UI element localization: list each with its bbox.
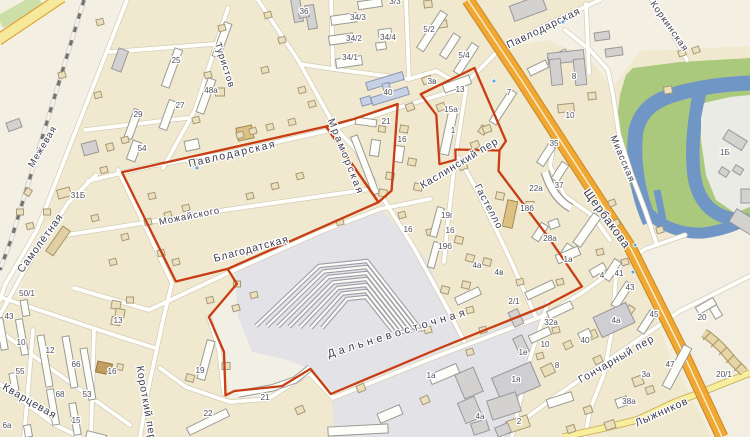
svg-text:19: 19 [195, 366, 205, 375]
svg-text:20: 20 [697, 313, 707, 322]
svg-text:18б: 18б [520, 204, 534, 213]
svg-text:15: 15 [71, 416, 81, 425]
svg-text:47: 47 [665, 360, 675, 369]
svg-text:16: 16 [107, 367, 117, 376]
svg-text:22а: 22а [529, 184, 543, 193]
svg-text:50/1: 50/1 [19, 289, 35, 298]
svg-text:28а: 28а [543, 234, 557, 243]
svg-text:3а: 3а [641, 370, 651, 379]
svg-text:12: 12 [45, 346, 55, 355]
svg-text:13: 13 [113, 316, 123, 325]
svg-text:4а: 4а [475, 412, 485, 421]
svg-text:1я: 1я [512, 375, 521, 384]
svg-text:68: 68 [55, 390, 65, 399]
svg-text:8: 8 [572, 72, 577, 81]
svg-text:4а: 4а [611, 316, 621, 325]
svg-text:19б: 19б [438, 242, 452, 251]
svg-text:19г: 19г [441, 211, 453, 220]
svg-text:36: 36 [299, 7, 309, 16]
svg-text:38а: 38а [622, 397, 636, 406]
svg-text:66: 66 [71, 360, 81, 369]
svg-text:22: 22 [203, 409, 213, 418]
svg-text:15а: 15а [444, 105, 458, 114]
svg-text:2/1: 2/1 [508, 297, 520, 306]
svg-text:53: 53 [82, 390, 92, 399]
svg-text:13: 13 [455, 85, 465, 94]
svg-text:40: 40 [580, 336, 590, 345]
svg-text:40: 40 [383, 88, 393, 97]
svg-text:43: 43 [4, 312, 14, 321]
svg-text:1е: 1е [518, 348, 528, 357]
svg-text:48а: 48а [204, 86, 218, 95]
svg-text:2: 2 [517, 417, 522, 426]
svg-text:27: 27 [175, 101, 185, 110]
svg-text:16: 16 [397, 135, 407, 144]
svg-text:25: 25 [171, 56, 181, 65]
svg-text:5/4: 5/4 [458, 51, 470, 60]
svg-text:29: 29 [133, 110, 143, 119]
svg-text:3/3: 3/3 [389, 0, 401, 6]
svg-text:34/3: 34/3 [350, 13, 366, 22]
svg-text:41: 41 [614, 269, 624, 278]
svg-text:21: 21 [260, 393, 270, 402]
svg-text:34/2: 34/2 [346, 34, 362, 43]
svg-text:5/2: 5/2 [423, 25, 435, 34]
svg-text:1: 1 [451, 126, 456, 135]
svg-text:1а: 1а [426, 371, 436, 380]
svg-text:4в: 4в [495, 268, 504, 277]
svg-text:34/4: 34/4 [380, 33, 396, 42]
svg-text:10: 10 [16, 338, 26, 347]
svg-text:8: 8 [555, 361, 560, 370]
svg-text:10: 10 [565, 111, 575, 120]
svg-text:16: 16 [403, 225, 413, 234]
svg-text:16: 16 [445, 226, 455, 235]
svg-text:20/1: 20/1 [716, 370, 732, 379]
svg-text:6а: 6а [2, 421, 12, 430]
svg-text:1а: 1а [563, 255, 573, 264]
svg-text:37: 37 [554, 181, 564, 190]
svg-text:34/1: 34/1 [342, 53, 358, 62]
svg-text:21: 21 [381, 117, 391, 126]
svg-text:4: 4 [600, 271, 605, 280]
svg-text:35: 35 [549, 139, 559, 148]
svg-text:45: 45 [649, 310, 659, 319]
svg-text:31Б: 31Б [71, 191, 85, 200]
svg-text:3в: 3в [428, 77, 437, 86]
svg-text:55: 55 [15, 367, 25, 376]
svg-text:32а: 32а [544, 318, 558, 327]
svg-text:1Б: 1Б [720, 148, 730, 157]
svg-text:43: 43 [625, 283, 635, 292]
svg-text:4а: 4а [472, 261, 482, 270]
svg-text:54: 54 [137, 144, 147, 153]
svg-text:7: 7 [507, 88, 512, 97]
svg-text:10: 10 [540, 340, 550, 349]
